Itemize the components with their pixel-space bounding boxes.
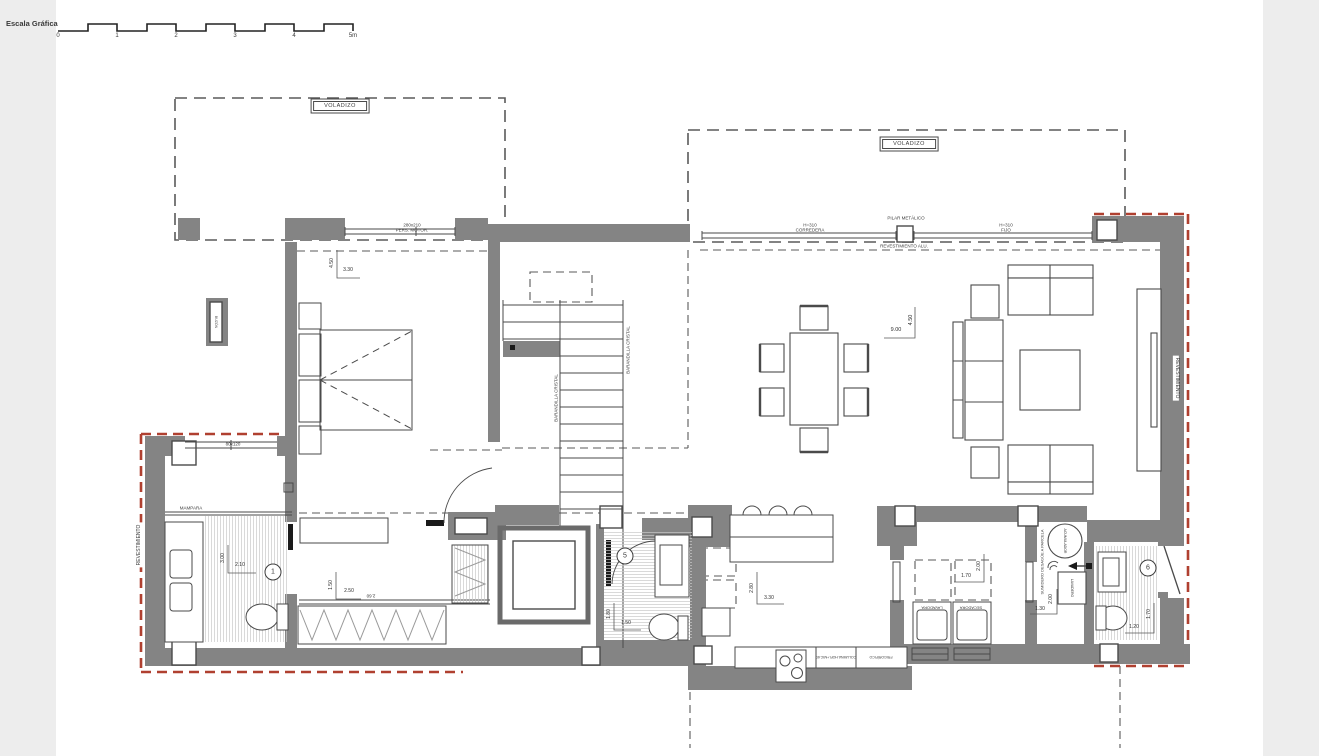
bed bbox=[299, 303, 412, 454]
voladizo-tag-left: VOLADIZO bbox=[313, 101, 367, 111]
pilar-metalico-label: PILAR METÁLICO bbox=[887, 215, 924, 220]
mampara-label: MAMPARA bbox=[180, 505, 202, 510]
dim-dressing-v: 1.50 bbox=[329, 580, 335, 590]
lavadero-label: LAVADERO bbox=[1070, 579, 1074, 598]
acumulador-label: ACUMULADOR bbox=[1063, 529, 1067, 554]
dressing-area bbox=[298, 468, 492, 644]
floorplan-drawing bbox=[0, 0, 1319, 756]
dim-dressing-h: 2.50 bbox=[344, 589, 354, 595]
scale-tick-1: 1 bbox=[107, 33, 127, 39]
dim-bath1-h: 2.10 bbox=[235, 563, 245, 569]
scale-tick-0: 0 bbox=[48, 33, 68, 39]
dim-bath5-v: 1.80 bbox=[607, 609, 613, 619]
scale-tick-5: 5m bbox=[343, 33, 363, 39]
scale-tick-4: 4 bbox=[284, 33, 304, 39]
dim-utility-h: 1.30 bbox=[1035, 607, 1045, 613]
scale-tick-3: 3 bbox=[225, 33, 245, 39]
dim-bath5-h: 1.50 bbox=[621, 621, 631, 627]
buzon-label: BUZÓN bbox=[214, 316, 218, 328]
dim-bath6-h: 1.20 bbox=[1129, 625, 1139, 631]
dim-bath6-v: 1.70 bbox=[1147, 609, 1153, 619]
scale-tick-2: 2 bbox=[166, 33, 186, 39]
dim-utility-v: 2.00 bbox=[1049, 594, 1055, 604]
voladizo-tag-right: VOLADIZO bbox=[882, 139, 936, 149]
bedroom-window-label: 280x210 PERS. MOTOR. bbox=[396, 223, 429, 234]
barandilla-right-label: BARANDILLA CRISTAL bbox=[625, 326, 630, 374]
dim-kitchen-v: 2.80 bbox=[750, 583, 756, 593]
dim-bath1-v: 3.00 bbox=[221, 553, 227, 563]
corredera-text: CORREDERA bbox=[796, 228, 825, 233]
fijo-text: FIJO bbox=[999, 228, 1012, 233]
room-number-bath1: 1 bbox=[265, 564, 282, 581]
dim-laundry-h: 1.70 bbox=[961, 574, 971, 580]
sofa-group bbox=[953, 265, 1161, 494]
dining-set bbox=[760, 306, 868, 452]
dim-bedroom-v: 4.50 bbox=[330, 258, 336, 268]
bathroom-5 bbox=[604, 530, 692, 640]
dim-living-v: 4.50 bbox=[908, 315, 914, 326]
dim-living-h: 9.00 bbox=[891, 327, 902, 333]
scale-bar-title: Escala Gráfica bbox=[6, 19, 58, 28]
dim-bedroom-h: 3.30 bbox=[343, 268, 353, 274]
floorplan-canvas: Escala Gráfica 0 1 2 3 4 5m VOLADIZO VOL… bbox=[0, 0, 1319, 756]
revestimiento-left-label: REVESTIMIENTO bbox=[137, 523, 143, 568]
fijo-label: H=310 FIJO bbox=[999, 223, 1012, 234]
barandilla-left-label: BARANDILLA CRISTAL bbox=[553, 374, 558, 422]
room-number-bath5: 5 bbox=[617, 548, 634, 565]
bath1-window-label: 80x120 bbox=[226, 441, 241, 446]
elevator bbox=[500, 528, 588, 622]
columna-horno-label: COLUMNA HOR.+MIC.60 bbox=[816, 655, 856, 659]
scale-bar bbox=[58, 24, 353, 31]
corredera-label: H=310 CORREDERA bbox=[796, 223, 825, 234]
revestimiento-alu-label: REVESTIMIENTO ALU. bbox=[878, 243, 930, 248]
frigorifico-label: FRIGORÍFICO bbox=[870, 655, 893, 659]
dim-kitchen-h: 3.30 bbox=[764, 596, 774, 602]
dim-dressing-alt: 2.60 bbox=[367, 593, 376, 598]
dim-laundry-v: 2.00 bbox=[977, 561, 983, 571]
sumidero-label: SUMIDERO DESAGÜE A PARCELA bbox=[1041, 529, 1046, 594]
room-number-bath6: 6 bbox=[1140, 560, 1157, 577]
bedroom-window-type: PERS. MOTOR. bbox=[396, 228, 429, 233]
secadora-label: SECADORA bbox=[960, 605, 982, 610]
revestimiento-right-label: REVESTIMIENTO bbox=[1173, 356, 1179, 401]
lavadora-label: LAVADORA bbox=[921, 605, 942, 610]
